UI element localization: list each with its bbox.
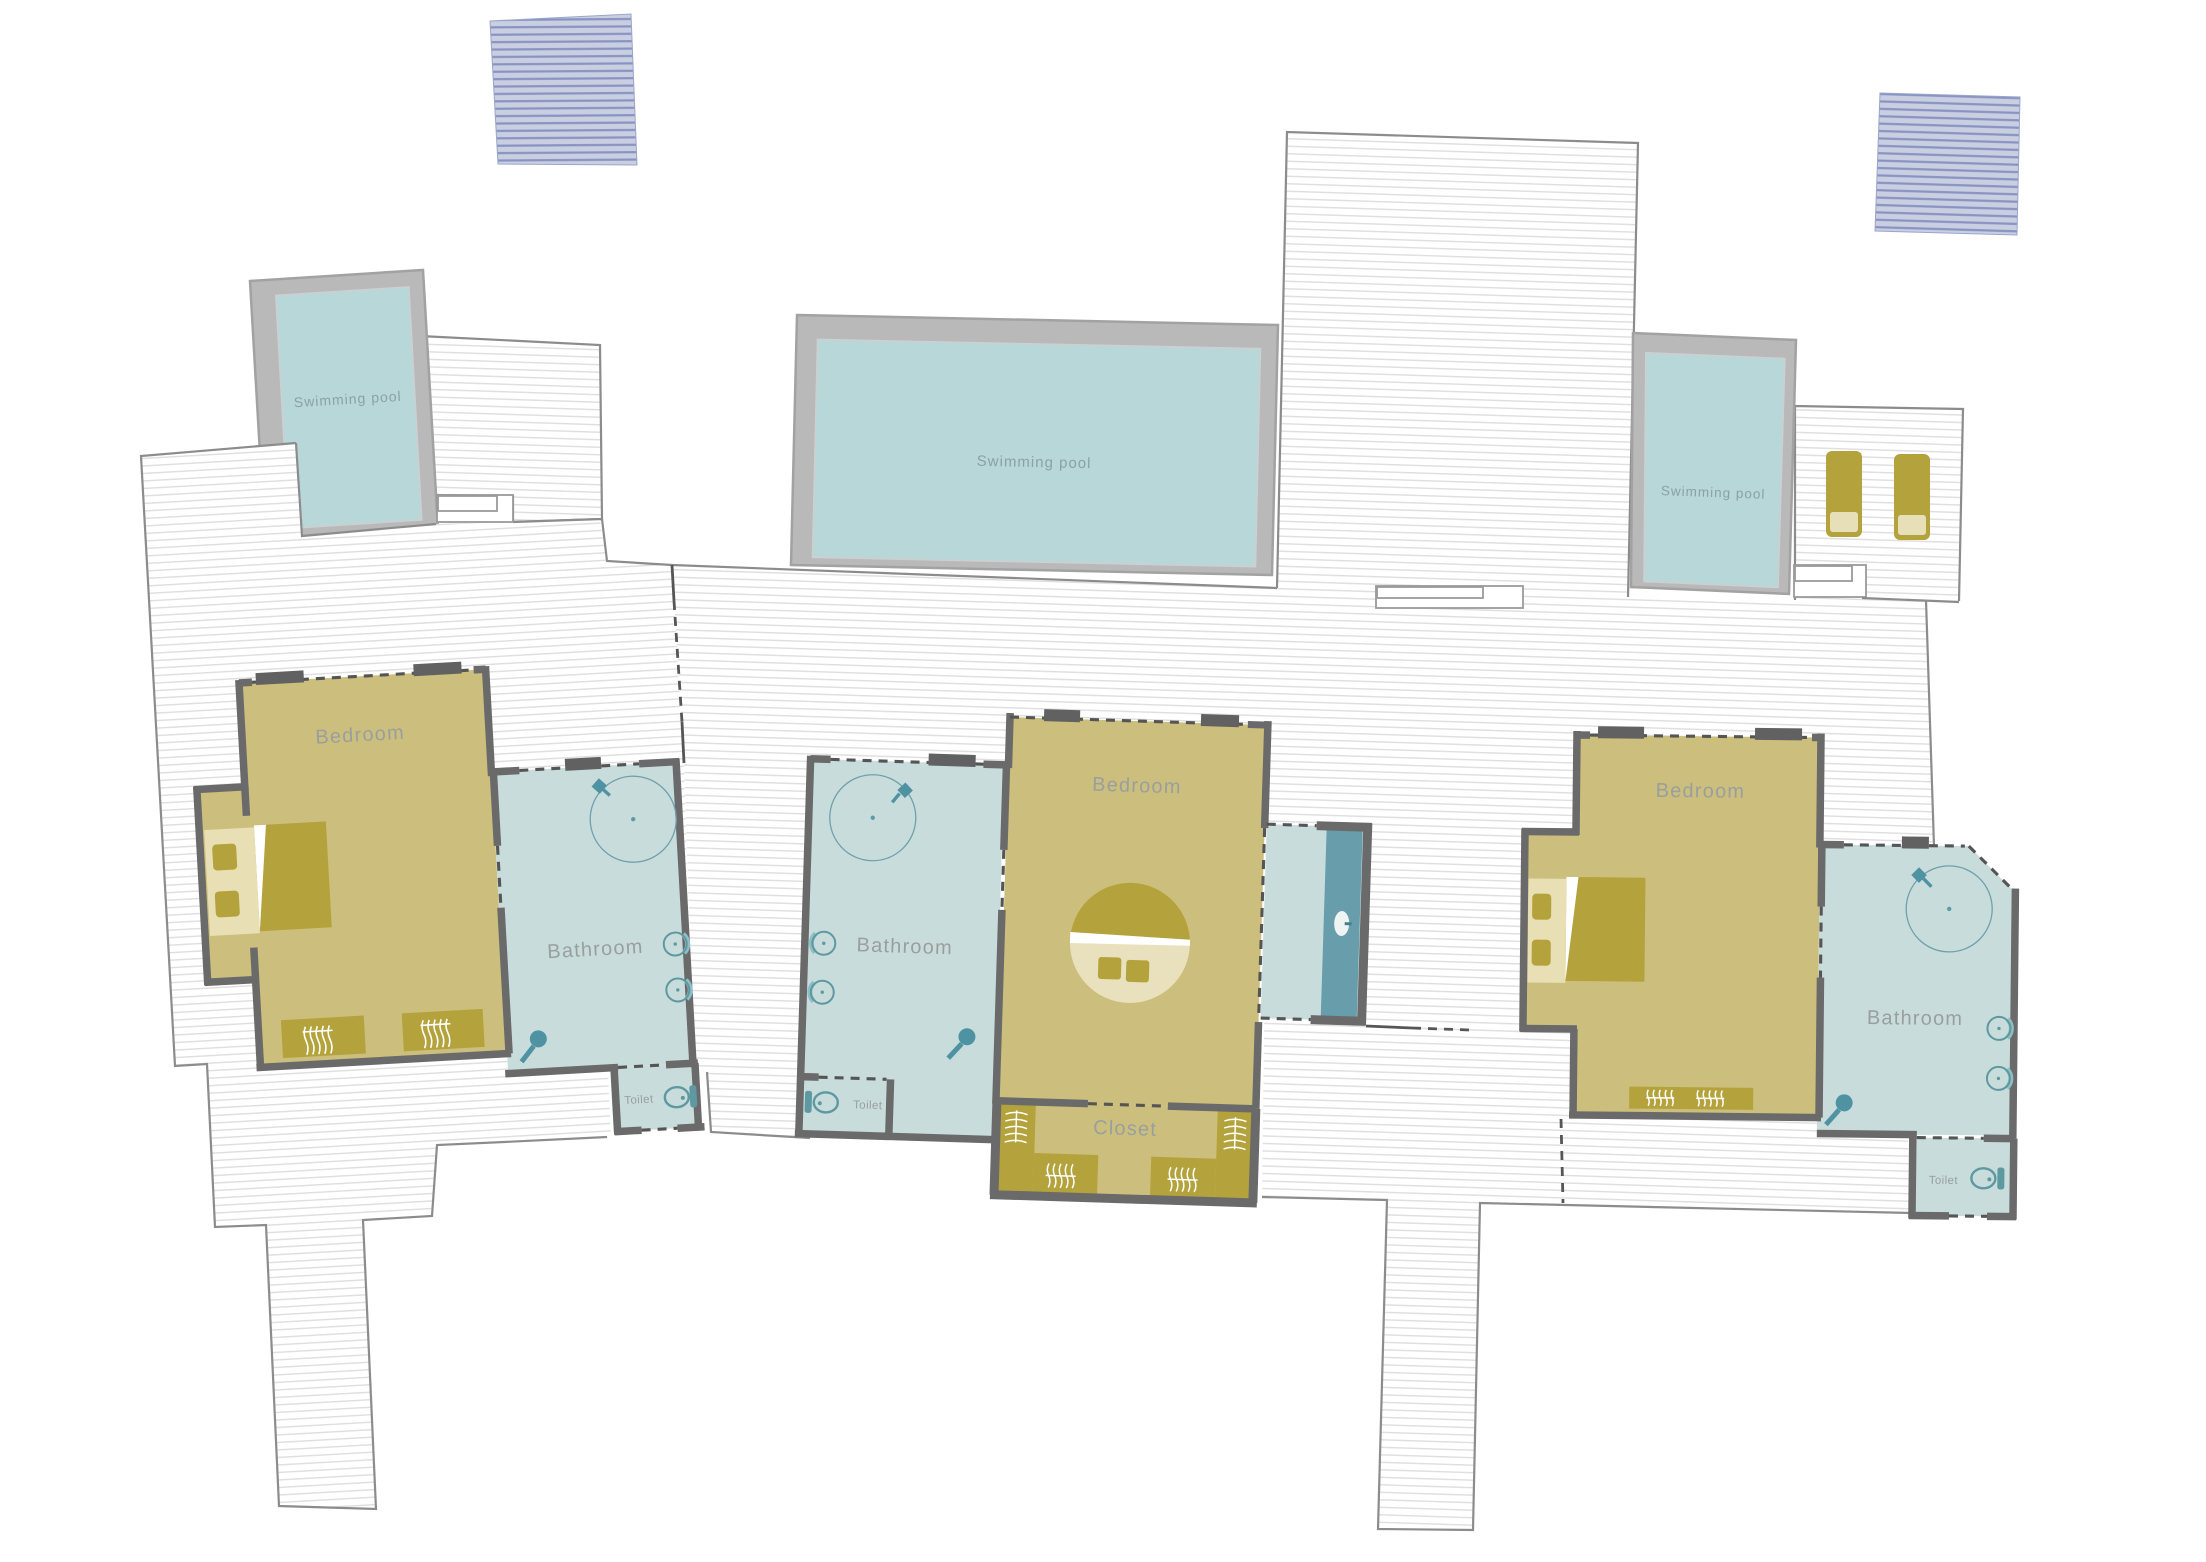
svg-text:Bedroom: Bedroom bbox=[1092, 774, 1182, 799]
svg-text:Bathroom: Bathroom bbox=[1867, 1007, 1964, 1030]
svg-text:Closet: Closet bbox=[1093, 1117, 1158, 1141]
svg-text:Bathroom: Bathroom bbox=[856, 934, 953, 959]
svg-text:Toilet: Toilet bbox=[853, 1099, 883, 1112]
svg-text:Toilet: Toilet bbox=[624, 1093, 654, 1107]
svg-text:Toilet: Toilet bbox=[1929, 1175, 1959, 1187]
svg-text:Swimming pool: Swimming pool bbox=[977, 453, 1092, 472]
svg-text:Bedroom: Bedroom bbox=[1656, 780, 1746, 803]
